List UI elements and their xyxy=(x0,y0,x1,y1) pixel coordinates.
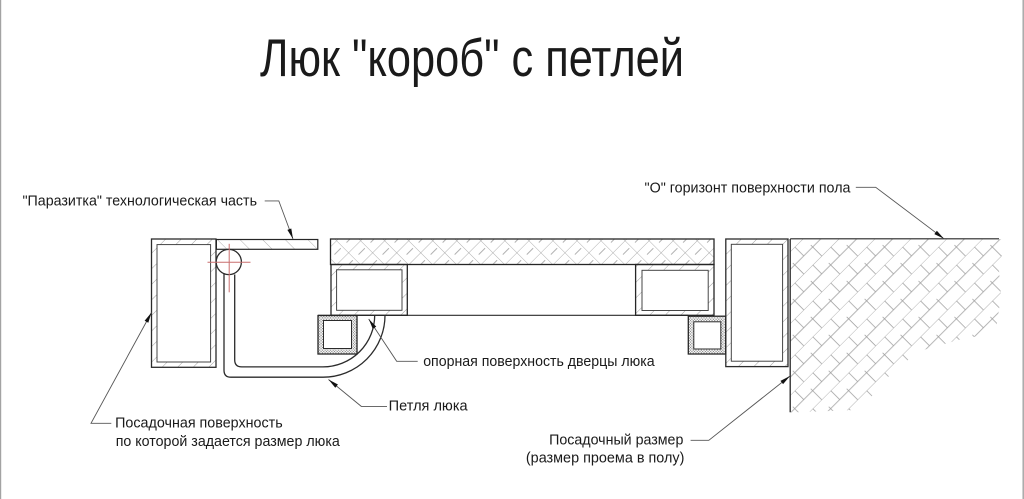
svg-text:Посадочный размер: Посадочный размер xyxy=(549,432,683,448)
svg-text:"О" горизонт поверхности пола: "О" горизонт поверхности пола xyxy=(645,180,851,196)
svg-text:(размер проема в полу): (размер проема в полу) xyxy=(526,451,685,467)
svg-text:по которой задается размер люк: по которой задается размер люка xyxy=(116,434,340,450)
svg-text:Посадочная поверхность: Посадочная поверхность xyxy=(115,415,283,431)
svg-text:"Паразитка" технологическая ча: "Паразитка" технологическая часть xyxy=(23,194,258,210)
svg-text:Люк "короб" с петлей: Люк "короб" с петлей xyxy=(260,29,684,88)
svg-text:опорная поверхность дверцы люк: опорная поверхность дверцы люка xyxy=(423,354,654,370)
svg-text:Петля люка: Петля люка xyxy=(389,399,468,415)
